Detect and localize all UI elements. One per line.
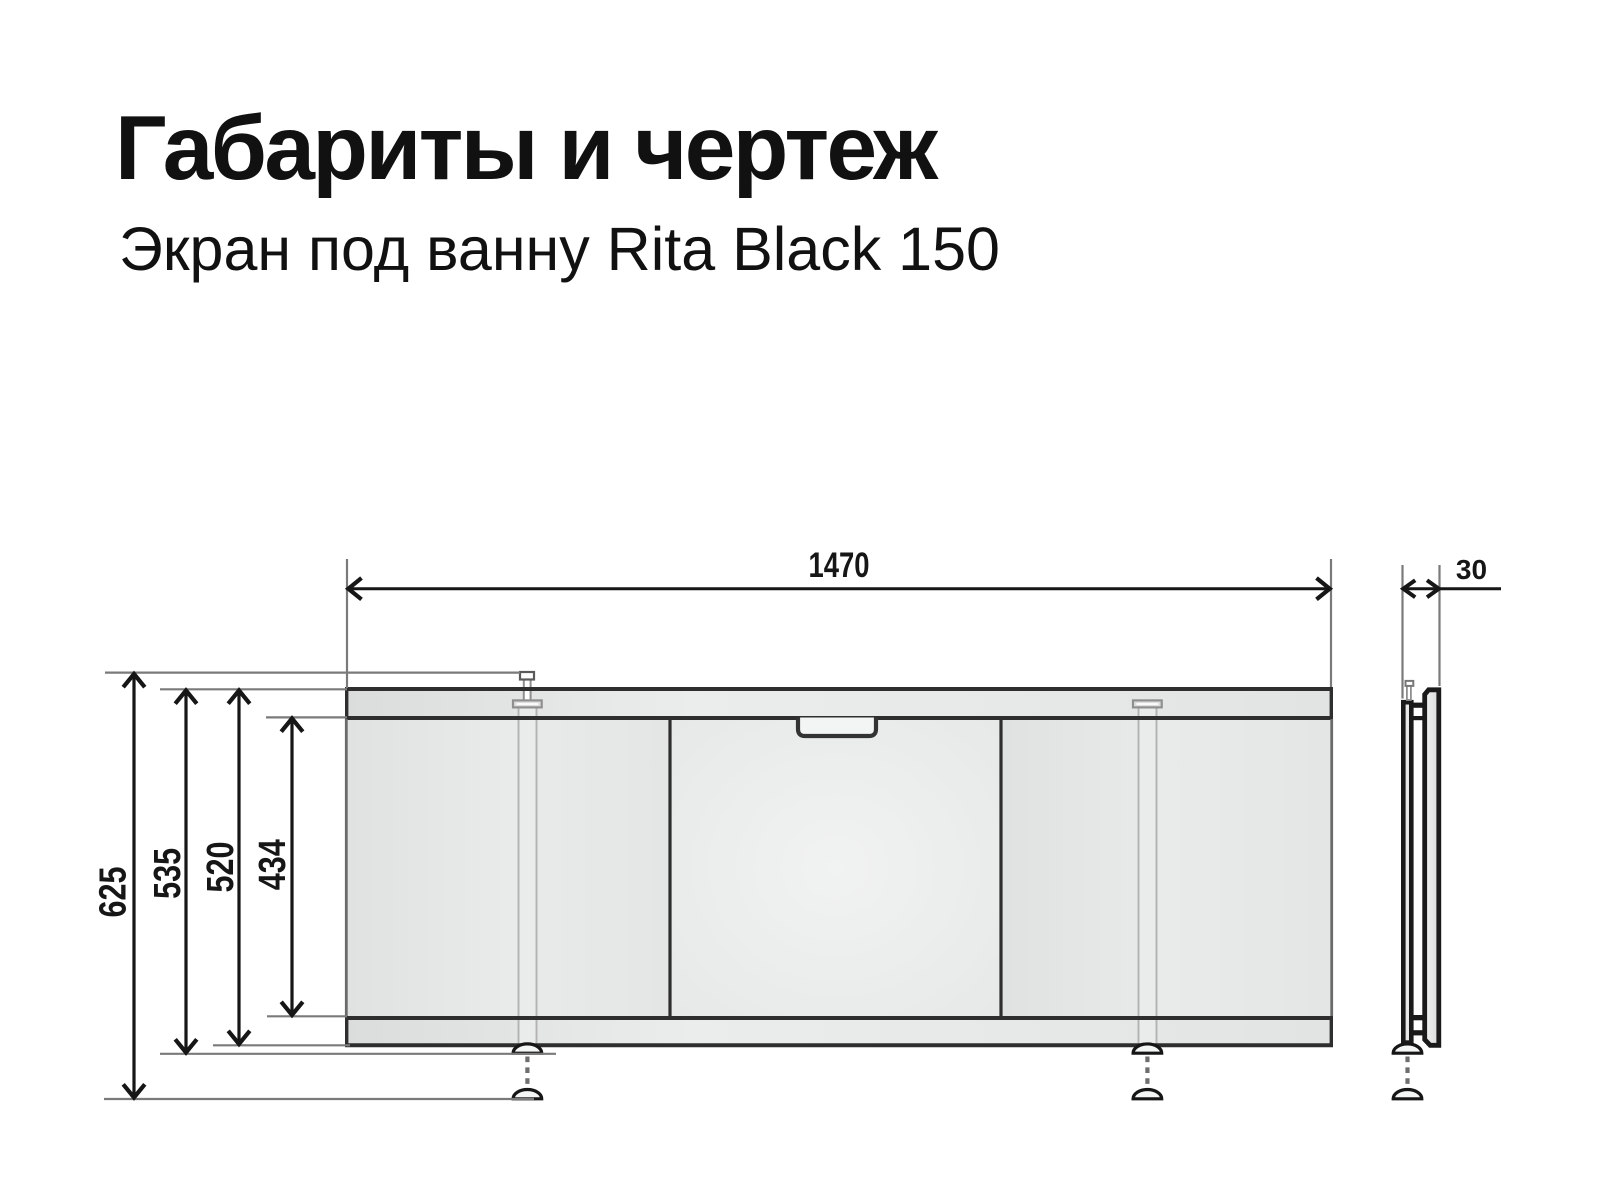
svg-text:30: 30 — [1456, 554, 1487, 585]
svg-text:625: 625 — [93, 867, 135, 918]
svg-text:434: 434 — [252, 839, 294, 890]
svg-text:1470: 1470 — [809, 546, 870, 585]
svg-text:520: 520 — [200, 842, 242, 893]
svg-text:535: 535 — [147, 848, 189, 899]
